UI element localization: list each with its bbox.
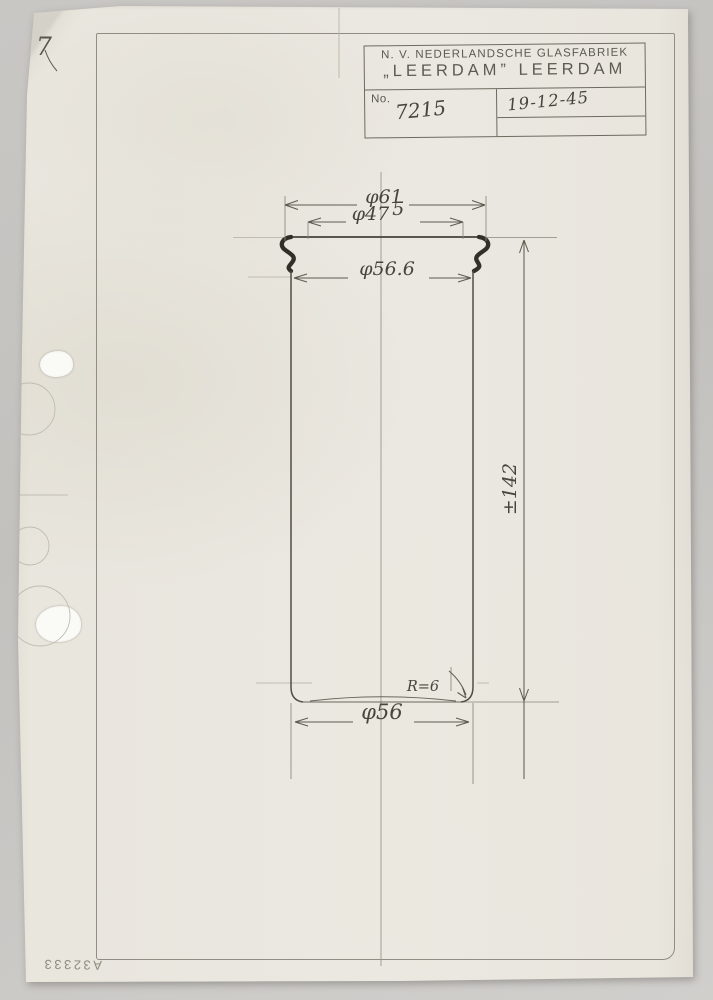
jar-outline [282,237,488,702]
jar-rim-right [474,237,488,271]
paper: N. V. NEDERLANDSCHE GLASFABRIEK „LEERDAM… [0,0,713,1000]
jar-rim-left [282,237,294,271]
dim-base-diameter-text: φ56 [361,700,402,724]
dim-shoulder-diameter-text: φ56.6 [359,258,415,280]
scanned-technical-drawing: N. V. NEDERLANDSCHE GLASFABRIEK „LEERDAM… [0,0,713,1000]
dim-height-text: ±142 [499,463,521,515]
corner-mark-text: 7 [36,32,52,61]
corner-mark: 7 [36,32,57,71]
paper-wrap: N. V. NEDERLANDSCHE GLASFABRIEK „LEERDAM… [0,0,713,1000]
jar-wall-right [461,271,473,702]
dimension-base-radius [449,667,466,698]
jar-wall-left [291,271,303,702]
pencil-circles [3,383,70,646]
dim-base-radius-text: R=6 [406,679,439,695]
dim-mouth-diameter-text: φ475 [352,198,405,225]
jar-technical-drawing: 7 [0,0,713,1000]
